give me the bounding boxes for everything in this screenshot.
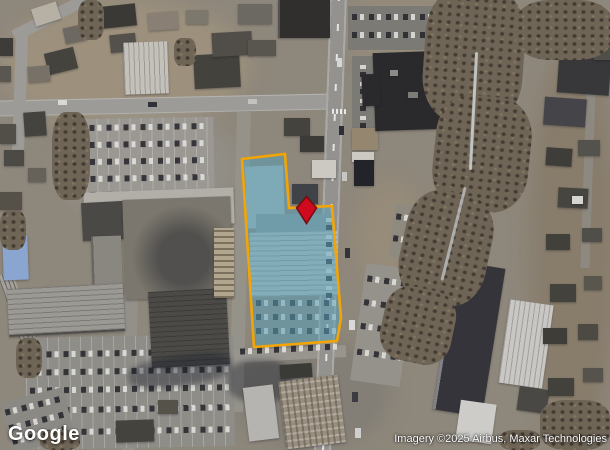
parcel-polygon[interactable] bbox=[242, 154, 341, 347]
satellite-map[interactable]: Google Imagery ©2025 Airbus, Maxar Techn… bbox=[0, 0, 610, 450]
imagery-attribution: Imagery ©2025 Airbus, Maxar Technologies bbox=[394, 433, 607, 445]
google-logo[interactable]: Google bbox=[8, 423, 80, 446]
parcel-overlay bbox=[0, 0, 610, 450]
